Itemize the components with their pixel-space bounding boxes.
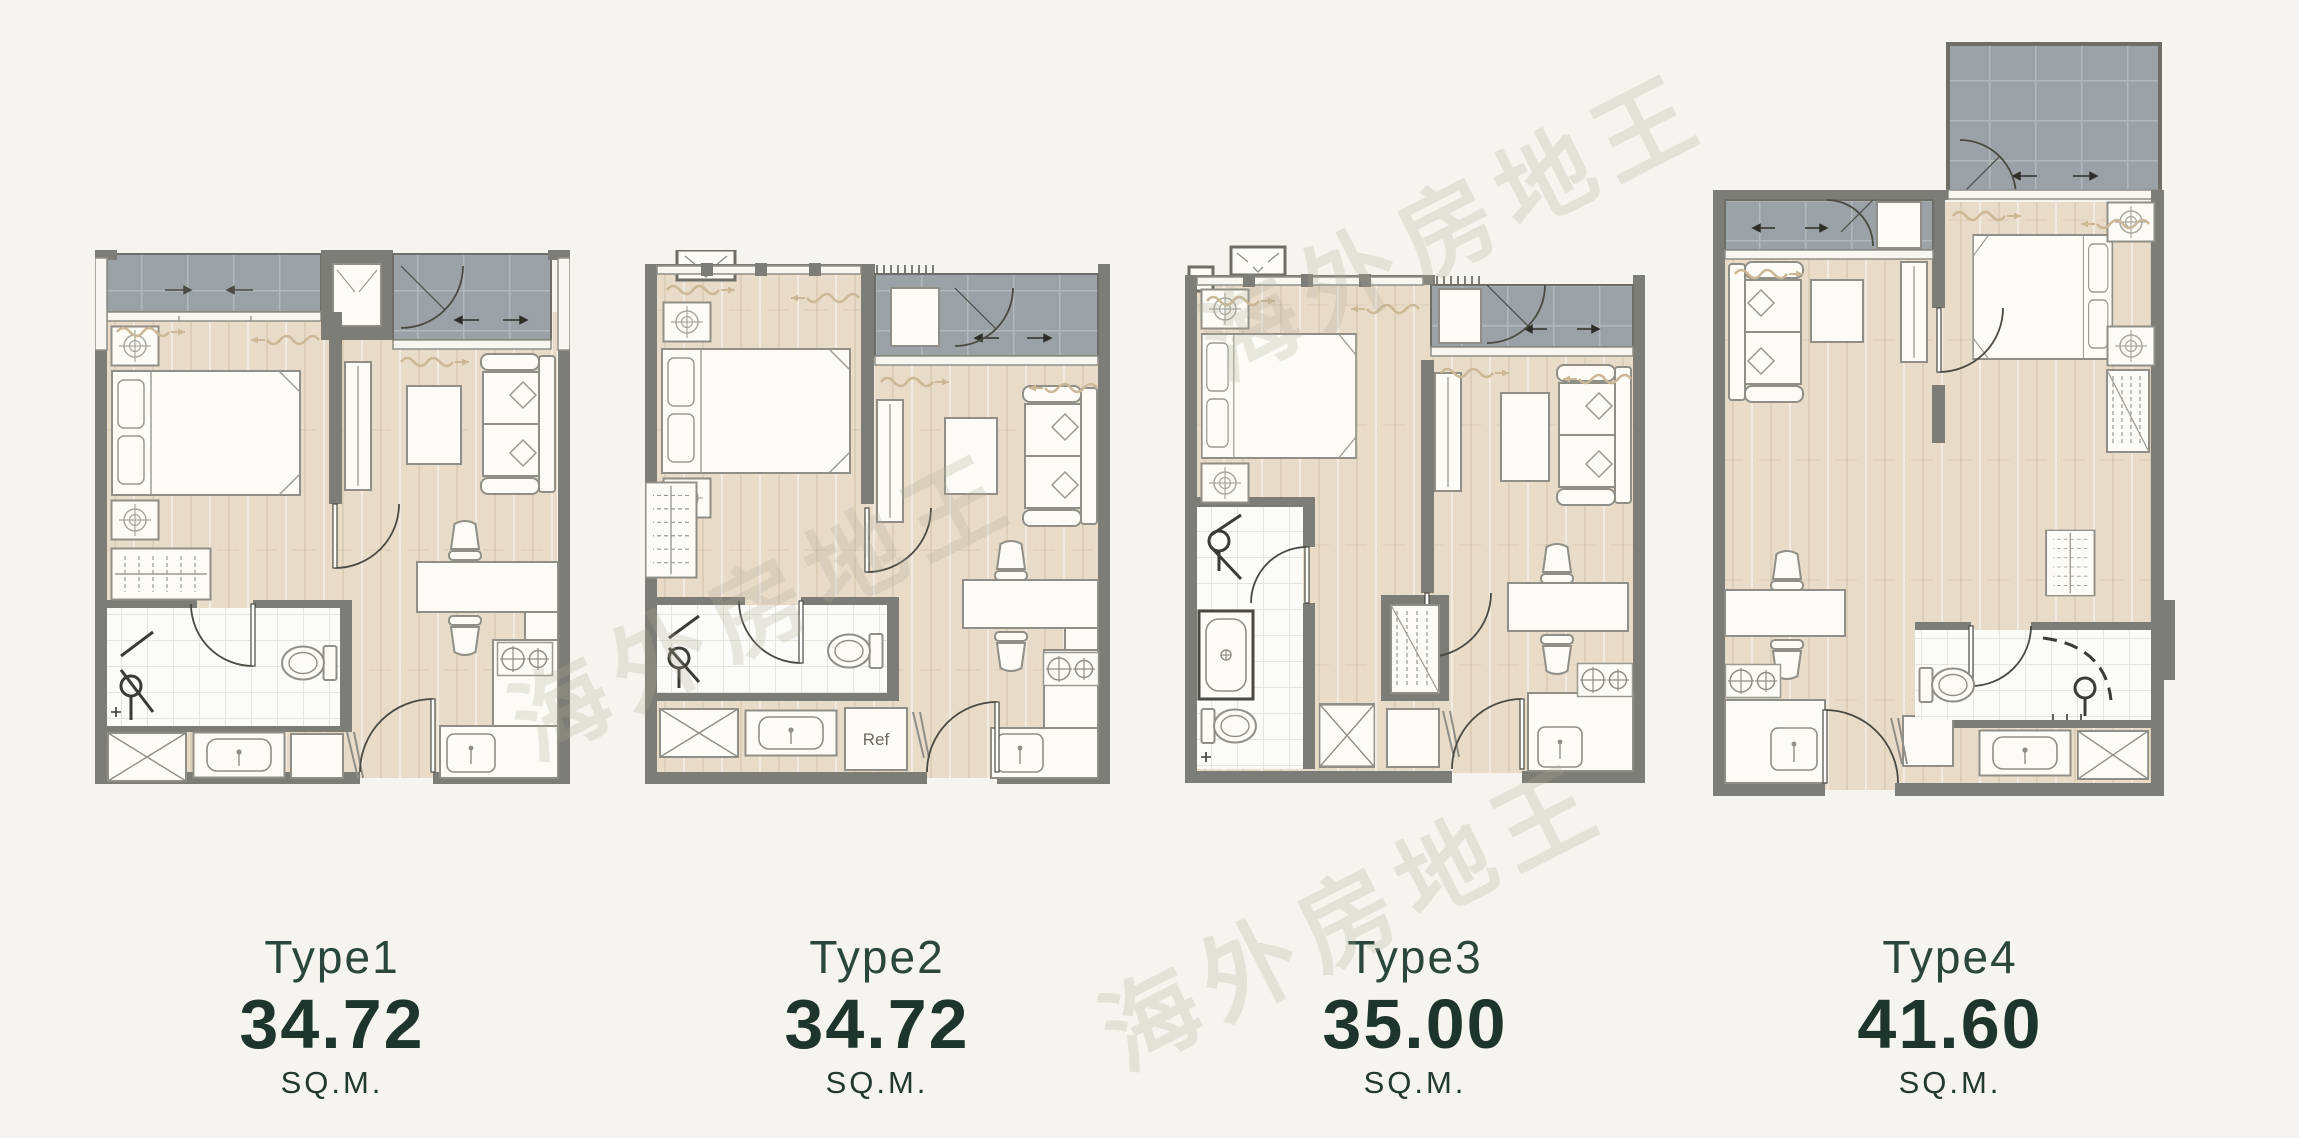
plan-area-unit: SQ.M. xyxy=(717,1062,1037,1104)
toilet xyxy=(828,634,883,668)
coffee-table xyxy=(407,386,461,464)
washer xyxy=(2078,731,2148,779)
nightstand xyxy=(112,501,159,540)
plan-area-unit: SQ.M. xyxy=(172,1062,492,1104)
balcony-ac-box xyxy=(891,288,939,346)
terrace xyxy=(1948,44,2160,199)
plan-area-value: 34.72 xyxy=(717,986,1037,1062)
plan-label-type3: Type3 35.00 SQ.M. xyxy=(1255,928,1575,1104)
plan-area-unit: SQ.M. xyxy=(1790,1062,2110,1104)
kitchen-counter xyxy=(1528,693,1633,771)
bathtub xyxy=(1199,611,1253,699)
toilet xyxy=(1920,668,1975,702)
sofa xyxy=(1557,365,1631,505)
plan-type-name: Type4 xyxy=(1790,928,2110,986)
bathroom xyxy=(657,601,887,693)
bathroom xyxy=(1915,626,2151,720)
nightstand xyxy=(664,303,711,342)
balcony-left xyxy=(107,254,321,321)
washer xyxy=(660,709,738,757)
bed xyxy=(112,371,300,495)
sofa xyxy=(1023,386,1097,526)
plan-type-name: Type1 xyxy=(172,928,492,986)
bed xyxy=(662,349,850,473)
fridge: Ref xyxy=(845,708,907,770)
vanity-basin xyxy=(1980,731,2071,776)
kitchen-counter xyxy=(991,728,1098,778)
desk xyxy=(1725,590,1845,636)
window-left xyxy=(95,258,107,350)
plan-label-type4: Type4 41.60 SQ.M. xyxy=(1790,928,2110,1104)
wardrobe xyxy=(112,549,211,600)
floorplan-type2: Ref xyxy=(645,250,1110,790)
nightstand xyxy=(1202,290,1249,329)
window-right xyxy=(558,258,570,350)
desk-chair xyxy=(1541,544,1573,583)
coffee-table xyxy=(1811,280,1863,342)
floorplan-type4 xyxy=(1713,40,2193,800)
floorplan-type1 xyxy=(95,250,570,790)
nightstand xyxy=(2108,327,2155,366)
fridge-label: Ref xyxy=(863,730,890,749)
terrace-railing xyxy=(1948,190,2160,199)
desk xyxy=(417,562,558,612)
desk-chair xyxy=(995,632,1027,671)
toilet xyxy=(1202,709,1257,743)
vanity-basin xyxy=(194,733,285,778)
coffee-table xyxy=(1501,393,1549,481)
desk-chair xyxy=(449,521,481,560)
stove xyxy=(1044,653,1099,686)
bathroom xyxy=(1197,507,1309,769)
floorplan-sheet: Ref xyxy=(0,0,2299,1138)
bedroom-wall xyxy=(861,274,874,504)
bathroom xyxy=(107,604,340,726)
balcony-ac-box xyxy=(1439,289,1481,343)
plan-label-type1: Type1 34.72 SQ.M. xyxy=(172,928,492,1104)
wardrobe-closet xyxy=(1391,605,1439,693)
floorplan-type3 xyxy=(1185,245,1645,795)
balcony-right xyxy=(393,254,551,349)
shoe-cabinet xyxy=(291,734,343,778)
washer xyxy=(108,733,186,781)
wardrobe xyxy=(2046,530,2094,595)
bedroom-wall xyxy=(329,312,342,504)
bedroom-wall xyxy=(1421,360,1434,593)
toilet xyxy=(282,646,337,680)
plan-type-name: Type2 xyxy=(717,928,1037,986)
bed xyxy=(1202,334,1356,458)
desk xyxy=(963,580,1098,628)
balcony-ac-box xyxy=(1877,202,1921,248)
sofa xyxy=(481,354,555,494)
plan-type-name: Type3 xyxy=(1255,928,1575,986)
desk-chair xyxy=(449,616,481,655)
balcony xyxy=(1431,285,1633,356)
desk-chair xyxy=(995,541,1027,580)
stove xyxy=(498,643,553,676)
vanity-basin xyxy=(746,711,837,756)
plan-area-unit: SQ.M. xyxy=(1255,1062,1575,1104)
desk-chair xyxy=(1541,635,1573,674)
nightstand xyxy=(112,327,159,366)
shoe-cabinet xyxy=(1903,716,1953,766)
desk xyxy=(1508,583,1628,631)
stove xyxy=(1578,664,1633,697)
plan-area-value: 35.00 xyxy=(1255,986,1575,1062)
plan-area-value: 41.60 xyxy=(1790,986,2110,1062)
desk-chair xyxy=(1771,551,1803,590)
wardrobe-closet xyxy=(2107,370,2149,452)
plan-label-type2: Type2 34.72 SQ.M. xyxy=(717,928,1037,1104)
stove xyxy=(1726,665,1781,698)
coffee-table xyxy=(945,418,997,494)
balcony xyxy=(875,274,1098,365)
balcony xyxy=(1725,200,1933,259)
shoe-cabinet xyxy=(1387,709,1439,767)
vent-grille xyxy=(877,265,933,274)
washer xyxy=(1320,704,1375,766)
nightstand xyxy=(1202,464,1249,503)
sofa xyxy=(1729,262,1803,402)
plan-area-value: 34.72 xyxy=(172,986,492,1062)
wardrobe xyxy=(646,482,697,577)
